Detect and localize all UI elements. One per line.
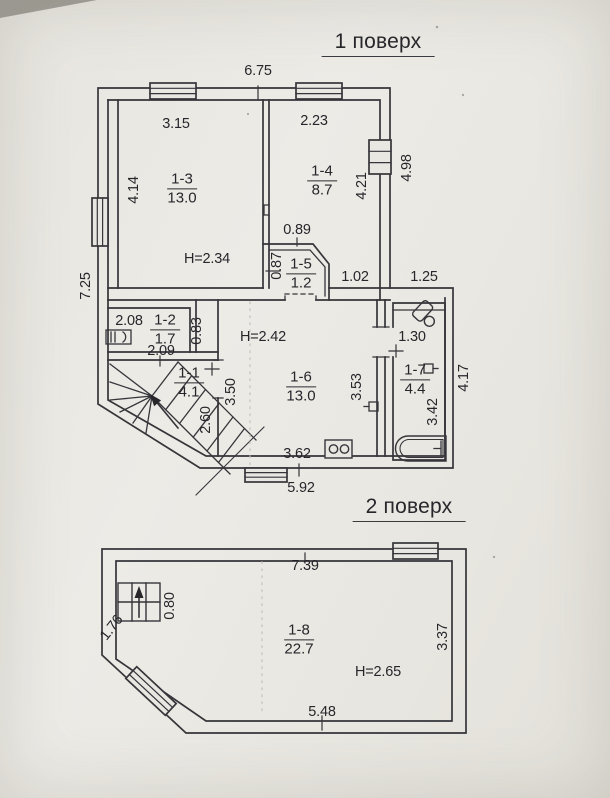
dim-right-height: 4.98 <box>400 154 415 181</box>
room-height-1-6: H=2.42 <box>240 330 286 345</box>
dim-top-width: 6.75 <box>244 64 271 79</box>
floor2-title: 2 поверх <box>353 496 466 522</box>
room-id: 1-8 <box>284 622 314 640</box>
window-icon <box>92 198 108 246</box>
floor1-title: 1 поверх <box>322 31 435 57</box>
dim-left-height: 7.25 <box>79 272 94 299</box>
dim-hall-width: 1.02 <box>341 270 368 285</box>
dim2-stair-width: 0.80 <box>163 592 178 619</box>
window-icon <box>393 543 438 559</box>
dim-stair-width: 2.09 <box>147 344 174 359</box>
dim2-bottom-width: 5.48 <box>308 705 335 720</box>
dim2-top-width: 7.39 <box>291 559 318 574</box>
dim-r13-width: 3.15 <box>162 117 189 132</box>
room-area: 1.2 <box>286 274 316 292</box>
dim-r16-width: 3.62 <box>283 447 310 462</box>
room-height-1-8: H=2.65 <box>355 665 401 680</box>
bathtub-icon <box>396 436 447 461</box>
room-label-1-6: 1-6 13.0 <box>286 369 316 404</box>
dim-vest-width: 0.89 <box>283 223 310 238</box>
room-label-1-4: 1-4 8.7 <box>307 163 337 198</box>
dim-porch-width: 1.25 <box>410 270 437 285</box>
dim-r17-width: 1.30 <box>398 330 425 345</box>
room-id: 1-7 <box>400 362 430 380</box>
dim-r16-right-height: 3.53 <box>350 373 365 400</box>
window-icon <box>126 667 176 716</box>
dim-bottom-width: 5.92 <box>287 481 314 496</box>
room-area: 13.0 <box>286 387 316 405</box>
electric-panel-icon <box>106 330 131 344</box>
dim-right-lower-height: 4.17 <box>457 364 472 391</box>
dim-stair-height: 2.60 <box>199 406 214 433</box>
room-id: 1-4 <box>307 163 337 181</box>
dim-r14-width: 2.23 <box>300 114 327 129</box>
crease-line <box>250 302 262 716</box>
room-area: 13.0 <box>167 189 197 207</box>
toilet-icon <box>411 300 441 330</box>
room-area: 4.4 <box>400 380 430 398</box>
room-id: 1-3 <box>167 171 197 189</box>
floor1-plan <box>92 83 453 495</box>
room-height-1-3: H=2.34 <box>184 252 230 267</box>
dim-niche-width: 0.83 <box>190 317 205 344</box>
room-area: 8.7 <box>307 181 337 199</box>
room-label-1-8: 1-8 22.7 <box>284 622 314 657</box>
room-label-1-3: 1-3 13.0 <box>167 171 197 206</box>
page-edge-shadow <box>0 0 97 18</box>
room-id: 1-5 <box>286 256 316 274</box>
room-area: 4.1 <box>174 383 204 401</box>
dim-r13-height: 4.14 <box>127 176 142 203</box>
window-icon <box>296 83 342 99</box>
room-id: 1-6 <box>286 369 316 387</box>
room-label-1-5: 1-5 1.2 <box>286 256 316 291</box>
dim-vest-height: 0.87 <box>270 252 285 279</box>
dim-r14-height: 4.21 <box>355 172 370 199</box>
stove-icon <box>325 440 352 458</box>
dim-r12-width: 2.08 <box>115 314 142 329</box>
room-id: 1-2 <box>150 312 180 330</box>
window-icon <box>369 140 391 174</box>
room-label-1-7: 1-7 4.4 <box>400 362 430 397</box>
dim2-right-height: 3.37 <box>436 623 451 650</box>
room-area: 22.7 <box>284 640 314 658</box>
room-label-1-1: 1-1 4.1 <box>174 365 204 400</box>
room-id: 1-1 <box>174 365 204 383</box>
scanned-floorplan-page: 1 поверх 6.75 3.15 2.23 4.14 4.21 4.98 7… <box>0 0 610 798</box>
dim-r17-height: 3.42 <box>426 398 441 425</box>
window-icon <box>150 83 196 99</box>
entrance-step-icon <box>245 468 287 482</box>
dim-r16-height: 3.50 <box>224 378 239 405</box>
